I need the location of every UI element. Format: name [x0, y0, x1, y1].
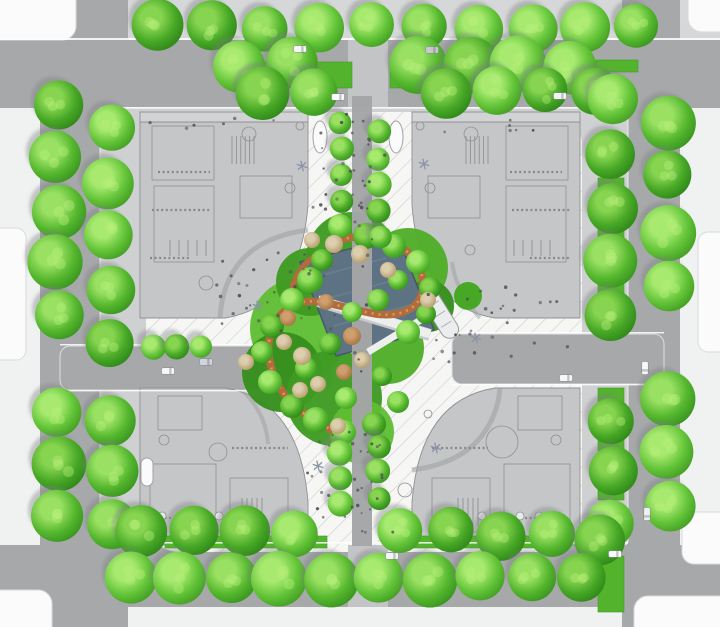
- canopy-highlight: [525, 23, 535, 33]
- pedestrian-dot: [221, 322, 224, 325]
- pedestrian-dot: [473, 351, 476, 354]
- car-body: [200, 359, 213, 366]
- pedestrian-dot: [289, 270, 293, 274]
- tree-canopy: [640, 205, 696, 261]
- pedestrian-dot: [500, 308, 502, 310]
- canopy-highlight: [548, 529, 557, 538]
- canopy-highlight: [478, 28, 488, 38]
- east-entrance-street: [452, 334, 664, 384]
- canopy-highlight: [466, 574, 476, 584]
- pedestrian-dot: [369, 508, 371, 510]
- pedestrian-dot: [484, 307, 488, 311]
- canopy-highlight: [326, 574, 337, 585]
- canopy-highlight: [144, 531, 154, 541]
- pedestrian-dot: [508, 129, 511, 132]
- pedestrian-dot: [371, 238, 373, 240]
- pedestrian-dot: [370, 442, 373, 445]
- canopy-highlight: [110, 128, 119, 137]
- canopy-highlight: [39, 150, 49, 160]
- canopy-highlight: [639, 18, 648, 27]
- pedestrian-dot: [364, 184, 367, 187]
- pedestrian-dot: [230, 274, 233, 277]
- canopy-highlight: [549, 519, 558, 528]
- car: [426, 47, 439, 54]
- pedestrian-dot: [506, 321, 509, 324]
- pedestrian-dot: [311, 475, 314, 478]
- tree-canopy: [310, 376, 326, 392]
- canopy-highlight: [659, 288, 669, 298]
- canopy-highlight: [284, 578, 295, 589]
- pedestrian-dot: [353, 169, 356, 172]
- canopy-highlight: [604, 197, 614, 207]
- tree-canopy: [335, 387, 357, 409]
- tree: [292, 382, 308, 398]
- canopy-highlight: [607, 91, 617, 101]
- canopy-highlight: [260, 94, 271, 105]
- tree-canopy: [639, 425, 693, 479]
- pedestrian-dot: [508, 124, 511, 127]
- canopy-highlight: [365, 14, 374, 23]
- canopy-highlight: [422, 575, 433, 586]
- car: [386, 553, 399, 560]
- car: [609, 551, 622, 558]
- car: [642, 362, 649, 375]
- tree-canopy: [330, 136, 354, 160]
- canopy-highlight: [657, 237, 668, 248]
- block-northeast: [688, 0, 720, 32]
- tree: [342, 302, 362, 322]
- pedestrian-dot: [219, 295, 223, 299]
- canopy-highlight: [191, 525, 201, 535]
- tree: [304, 232, 320, 248]
- canopy-highlight: [104, 412, 114, 422]
- canopy-highlight: [58, 146, 68, 156]
- pedestrian-dot: [358, 224, 361, 227]
- pedestrian-dot: [376, 497, 379, 500]
- pedestrian-dot: [513, 309, 516, 312]
- tree-canopy: [238, 354, 254, 370]
- canopy-highlight: [666, 122, 677, 133]
- pedestrian-dot: [327, 494, 330, 497]
- pedestrian-dot: [380, 473, 383, 476]
- curb-line: [452, 332, 664, 333]
- tree-canopy: [508, 553, 556, 601]
- pedestrian-dot: [233, 117, 236, 120]
- canopy-highlight: [667, 395, 678, 406]
- tree-canopy: [587, 183, 638, 234]
- canopy-highlight: [579, 573, 589, 583]
- canopy-highlight: [609, 142, 619, 152]
- tree-canopy: [328, 491, 354, 517]
- tree: [328, 214, 352, 238]
- pedestrian-dot: [277, 251, 280, 254]
- pedestrian-dot: [364, 531, 367, 534]
- pedestrian-dot: [466, 298, 469, 301]
- tree-canopy: [319, 333, 341, 355]
- canopy-highlight: [456, 58, 467, 69]
- canopy-highlight: [627, 17, 636, 26]
- tree: [336, 364, 352, 380]
- car-windshield: [301, 46, 303, 53]
- pedestrian-dot: [454, 333, 457, 336]
- car: [644, 508, 651, 521]
- tree: [238, 354, 254, 370]
- tree-canopy: [329, 111, 352, 134]
- tree-canopy: [280, 310, 296, 326]
- pedestrian-dot: [249, 304, 251, 306]
- canopy-highlight: [290, 531, 299, 540]
- car-windshield: [339, 94, 341, 101]
- canopy-highlight: [603, 414, 612, 423]
- pedestrian-dot: [319, 203, 322, 206]
- canopy-highlight: [253, 22, 262, 31]
- canopy-highlight: [58, 214, 69, 225]
- canopy-highlight: [44, 97, 54, 107]
- pedestrian-dot: [300, 317, 302, 319]
- tree: [303, 407, 329, 433]
- canopy-highlight: [432, 566, 443, 577]
- block-southwest: [0, 590, 52, 627]
- pedestrian-dot: [432, 357, 435, 360]
- tree: [387, 391, 409, 413]
- pedestrian-dot: [328, 445, 330, 447]
- canopy-highlight: [491, 75, 501, 85]
- canopy-highlight: [100, 281, 110, 291]
- tree-canopy: [523, 68, 568, 113]
- pedestrian-dot: [318, 440, 321, 443]
- pedestrian-dot: [335, 178, 338, 181]
- car-windshield: [393, 553, 395, 560]
- canopy-highlight: [440, 87, 450, 97]
- canopy-highlight: [570, 573, 580, 583]
- canopy-highlight: [540, 530, 549, 539]
- tree-canopy: [343, 327, 361, 345]
- canopy-highlight: [307, 15, 317, 25]
- pedestrian-dot: [185, 127, 188, 130]
- tree: [280, 310, 296, 326]
- pedestrian-dot: [376, 445, 379, 448]
- canopy-highlight: [240, 525, 250, 535]
- tree-canopy: [327, 440, 353, 466]
- tree-canopy: [280, 288, 304, 312]
- canopy-highlight: [498, 90, 508, 100]
- car-windshield: [616, 551, 618, 558]
- pedestrian-dot: [357, 358, 359, 360]
- pedestrian-dot: [266, 258, 269, 261]
- tree-canopy: [336, 364, 352, 380]
- pedestrian-dot: [514, 293, 517, 296]
- car-windshield: [207, 359, 209, 366]
- pedestrian-dot: [515, 129, 517, 131]
- canopy-highlight: [513, 53, 524, 64]
- canopy-highlight: [106, 291, 116, 301]
- canopy-highlight: [179, 562, 190, 573]
- canopy-highlight: [490, 528, 500, 538]
- canopy-highlight: [667, 171, 677, 181]
- tree: [258, 370, 282, 394]
- pedestrian-dot: [468, 332, 471, 335]
- tree-canopy: [251, 551, 307, 607]
- tree-canopy: [366, 199, 390, 223]
- pedestrian-dot: [345, 113, 348, 116]
- pedestrian-dot: [383, 153, 386, 156]
- curb-line: [452, 384, 664, 385]
- canopy-highlight: [542, 95, 551, 104]
- pedestrian-dot: [351, 193, 354, 196]
- canopy-highlight: [52, 513, 62, 523]
- pedestrian-dot: [479, 290, 482, 293]
- tree-canopy: [164, 334, 189, 359]
- canopy-highlight: [108, 225, 118, 235]
- tree: [311, 249, 333, 271]
- tree-canopy: [366, 172, 391, 197]
- pedestrian-dot: [341, 162, 345, 166]
- tree-canopy: [89, 105, 135, 151]
- canopy-highlight: [309, 88, 318, 97]
- car-windshield: [642, 369, 649, 371]
- pedestrian-dot: [360, 205, 363, 208]
- pedestrian-dot: [358, 204, 361, 207]
- canopy-highlight: [223, 578, 233, 588]
- canopy-highlight: [64, 200, 75, 211]
- block-northwest: [0, 0, 76, 40]
- tree: [330, 418, 346, 434]
- car-windshield: [561, 93, 563, 100]
- canopy-highlight: [613, 98, 623, 108]
- pedestrian-dot: [366, 253, 370, 257]
- site-plan-canvas: [0, 0, 720, 627]
- pedestrian-dot: [427, 293, 430, 296]
- car: [560, 375, 573, 382]
- pedestrian-dot: [237, 282, 240, 285]
- pedestrian-dot: [221, 260, 224, 263]
- tree-canopy: [380, 262, 396, 278]
- canopy-highlight: [173, 583, 184, 594]
- canopy-highlight: [98, 344, 108, 354]
- tree-canopy: [328, 214, 352, 238]
- pedestrian-dot: [329, 327, 333, 331]
- pedestrian-dot: [306, 472, 309, 475]
- car-windshield: [644, 515, 651, 517]
- pedestrian-dot: [320, 491, 323, 494]
- canopy-highlight: [650, 446, 661, 457]
- canopy-highlight: [450, 528, 459, 537]
- canopy-highlight: [55, 100, 65, 110]
- pedestrian-dot: [324, 193, 327, 196]
- oval-skylight-east: [389, 121, 403, 153]
- canopy-southwest: [141, 458, 153, 486]
- tree: [372, 366, 392, 386]
- canopy-highlight: [56, 303, 66, 313]
- pedestrian-dot: [367, 137, 370, 140]
- tree: [380, 262, 396, 278]
- pedestrian-dot: [361, 512, 363, 514]
- car-body: [332, 94, 345, 101]
- canopy-highlight: [281, 48, 291, 58]
- tree-canopy: [303, 407, 329, 433]
- pedestrian-dot: [352, 121, 354, 123]
- canopy-highlight: [63, 466, 74, 477]
- tree: [325, 235, 343, 253]
- canopy-highlight: [606, 252, 617, 263]
- pedestrian-dot: [443, 131, 446, 134]
- block-east-mid: [698, 232, 720, 352]
- pedestrian-dot: [349, 170, 352, 173]
- pedestrian-dot: [366, 451, 368, 453]
- tree-canopy: [367, 119, 391, 143]
- pedestrian-dot: [356, 489, 359, 492]
- pedestrian-dot: [370, 481, 373, 484]
- pedestrian-dot: [192, 124, 195, 127]
- pedestrian-dot: [566, 345, 569, 348]
- building-northwest-podium: [140, 112, 308, 122]
- pedestrian-dot: [364, 433, 367, 436]
- canopy-highlight: [52, 248, 63, 259]
- canopy-highlight: [55, 258, 66, 269]
- pedestrian-dot: [352, 154, 355, 157]
- car: [554, 93, 567, 100]
- canopy-highlight: [52, 455, 63, 466]
- pedestrian-dot: [532, 129, 535, 132]
- car-body: [554, 93, 567, 100]
- pedestrian-dot: [435, 339, 437, 341]
- pedestrian-dot: [334, 314, 336, 316]
- tree-canopy: [330, 164, 352, 186]
- canopy-highlight: [574, 25, 584, 35]
- tree-canopy: [236, 66, 290, 120]
- pedestrian-dot: [293, 285, 296, 288]
- pedestrian-dot: [238, 294, 241, 297]
- tree-canopy: [365, 459, 390, 484]
- canopy-highlight: [101, 120, 110, 129]
- tree-canopy: [318, 294, 334, 310]
- tree-canopy: [84, 211, 133, 260]
- pedestrian-dot: [322, 167, 324, 169]
- canopy-highlight: [601, 320, 611, 330]
- pedestrian-dot: [549, 300, 552, 303]
- car: [200, 359, 213, 366]
- pedestrian-dot: [381, 476, 384, 479]
- pedestrian-dot: [360, 450, 362, 452]
- tree-canopy: [367, 289, 389, 311]
- canopy-highlight: [520, 572, 530, 582]
- canopy-highlight: [595, 533, 605, 543]
- tree: [335, 387, 357, 409]
- canopy-highlight: [468, 16, 478, 26]
- tree-canopy: [190, 336, 212, 358]
- canopy-highlight: [144, 17, 154, 27]
- canopy-highlight: [614, 197, 624, 207]
- tree: [310, 376, 326, 392]
- canopy-highlight: [180, 530, 190, 540]
- tree: [318, 294, 334, 310]
- canopy-highlight: [96, 421, 106, 431]
- canopy-highlight: [663, 503, 673, 513]
- pedestrian-dot: [491, 335, 494, 338]
- oval-skylight-west: [313, 121, 327, 153]
- block-west-mid: [0, 228, 26, 360]
- tree-canopy: [292, 382, 308, 398]
- car-windshield: [433, 47, 435, 54]
- pedestrian-dot: [245, 307, 248, 310]
- canopy-highlight: [113, 466, 123, 476]
- car: [294, 46, 307, 53]
- car-body: [294, 46, 307, 53]
- pedestrian-dot: [324, 208, 327, 211]
- pedestrian-dot: [335, 197, 338, 200]
- canopy-highlight: [129, 519, 139, 529]
- car-body: [426, 47, 439, 54]
- tree: [343, 327, 361, 345]
- canopy-highlight: [105, 177, 115, 187]
- pedestrian-dot: [440, 350, 444, 354]
- canopy-highlight: [512, 63, 523, 74]
- pedestrian-dot: [447, 360, 450, 363]
- tree-canopy: [372, 366, 392, 386]
- canopy-highlight: [358, 22, 367, 31]
- pedestrian-dot: [391, 531, 394, 534]
- pedestrian-dot: [369, 165, 372, 168]
- pedestrian-dot: [266, 301, 268, 303]
- canopy-highlight: [654, 501, 664, 511]
- canopy-highlight: [409, 63, 421, 75]
- pedestrian-dot: [362, 180, 364, 182]
- pedestrian-dot: [509, 119, 512, 122]
- tree: [276, 334, 292, 350]
- site-plan-image: [0, 0, 720, 627]
- tree-canopy: [258, 370, 282, 394]
- car: [162, 368, 175, 375]
- tree-canopy: [293, 347, 311, 365]
- tree-canopy: [396, 320, 420, 344]
- pedestrian-dot: [356, 504, 359, 507]
- pedestrian-dot: [257, 319, 260, 322]
- canopy-highlight: [671, 224, 682, 235]
- car-body: [644, 508, 651, 521]
- pedestrian-dot: [308, 306, 311, 309]
- pedestrian-dot: [215, 283, 218, 286]
- canopy-highlight: [606, 464, 616, 474]
- pedestrian-dot: [353, 478, 356, 481]
- car-body: [162, 368, 175, 375]
- pedestrian-dot: [303, 253, 305, 255]
- pedestrian-dot: [360, 201, 363, 204]
- pedestrian-dot: [344, 515, 346, 517]
- pedestrian-dot: [321, 147, 323, 149]
- tree-canopy: [406, 250, 430, 274]
- canopy-highlight: [135, 569, 145, 579]
- pedestrian-dot: [320, 470, 323, 473]
- pedestrian-dot: [272, 119, 274, 121]
- pedestrian-dot: [368, 180, 371, 183]
- canopy-highlight: [398, 517, 407, 526]
- pedestrian-dot: [362, 120, 365, 123]
- canopy-highlight: [607, 311, 617, 321]
- canopy-highlight: [204, 31, 214, 41]
- pedestrian-dot: [309, 269, 311, 271]
- canopy-highlight: [123, 565, 133, 575]
- pedestrian-dot: [504, 285, 508, 289]
- canopy-highlight: [545, 77, 554, 86]
- tree-canopy: [325, 235, 343, 253]
- canopy-highlight: [394, 526, 403, 535]
- pedestrian-dot: [252, 268, 255, 271]
- tree-canopy: [29, 131, 81, 183]
- pedestrian-dot: [322, 516, 325, 519]
- pedestrian-dot: [360, 487, 363, 490]
- canopy-highlight: [589, 542, 599, 552]
- pedestrian-dot: [367, 143, 369, 145]
